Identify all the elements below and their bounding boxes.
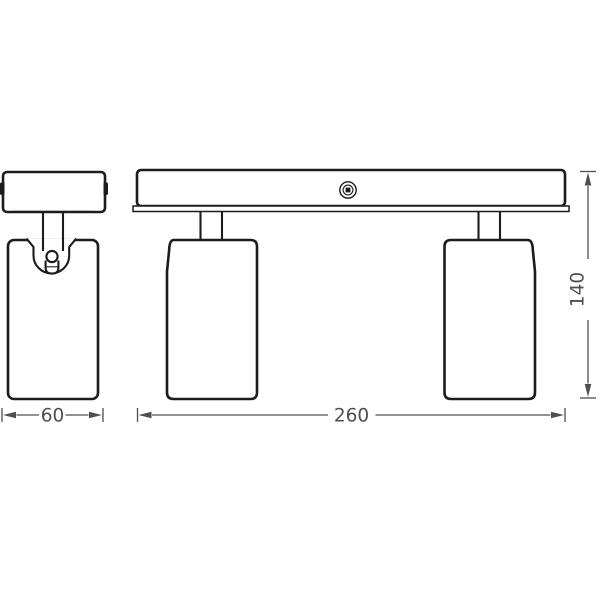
side-mounting-plate <box>3 172 105 212</box>
dim260-label: 260 <box>334 406 369 427</box>
front-bar-flange <box>133 206 569 212</box>
dim140-arrow-down-icon <box>585 384 592 397</box>
dimension-overall-width: 260 <box>138 406 566 427</box>
dim60-label: 60 <box>41 406 65 427</box>
front-ceiling-bar <box>137 170 565 206</box>
side-view <box>0 172 108 399</box>
dimension-head-width: 60 <box>2 406 103 427</box>
dimension-overall-height: 140 <box>568 172 597 399</box>
drawing-canvas: 60 260 140 <box>0 0 600 600</box>
spotlight-dimension-drawing: 60 260 140 <box>0 0 600 600</box>
screw-center-square <box>346 188 351 193</box>
front-left-spot-head <box>167 240 257 399</box>
dim260-arrow-left-icon <box>139 412 152 419</box>
front-view <box>133 170 569 399</box>
side-mounting-clip-right <box>104 183 109 196</box>
dim260-arrow-right-icon <box>551 412 564 419</box>
front-right-spot-head <box>445 240 536 399</box>
dim60-arrow-left-icon <box>3 412 16 419</box>
dim60-arrow-right-icon <box>89 412 102 419</box>
side-mounting-clip-left <box>0 183 5 196</box>
dim140-label: 140 <box>568 272 589 307</box>
side-pivot-screw-icon <box>46 251 57 262</box>
dim140-arrow-up-icon <box>585 173 592 186</box>
